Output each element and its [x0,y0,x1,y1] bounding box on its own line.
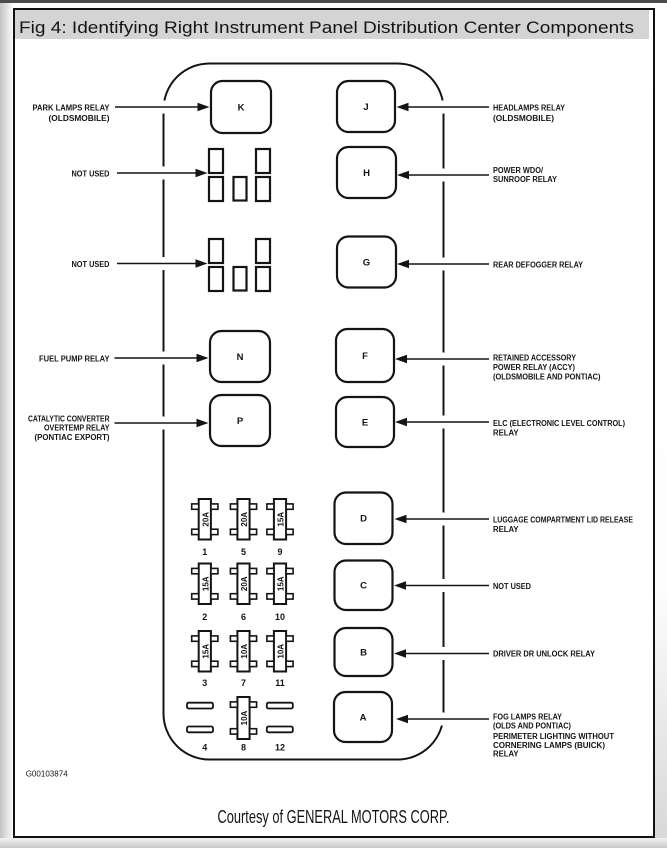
svg-text:10A: 10A [240,644,249,659]
svg-text:11: 11 [275,678,285,688]
svg-text:12: 12 [275,743,285,753]
svg-text:POWER WDO/: POWER WDO/ [493,166,544,175]
svg-text:CATALYTIC CONVERTER: CATALYTIC CONVERTER [28,414,110,423]
svg-text:20A: 20A [240,576,249,591]
svg-text:E: E [362,417,368,428]
svg-text:N: N [237,352,244,363]
svg-text:6: 6 [241,612,246,622]
svg-text:RETAINED ACCESSORY: RETAINED ACCESSORY [493,353,577,362]
svg-text:NOT USED: NOT USED [493,582,531,591]
svg-text:Courtesy of GENERAL MOTORS COR: Courtesy of GENERAL MOTORS CORP. [218,807,450,827]
svg-text:20A: 20A [201,512,210,527]
svg-text:(OLDSMOBILE AND PONTIAC): (OLDSMOBILE AND PONTIAC) [493,372,601,381]
svg-text:H: H [363,168,370,179]
svg-text:P: P [237,416,244,427]
svg-text:(OLDS AND PONTIAC): (OLDS AND PONTIAC) [493,721,571,730]
svg-text:REAR DEFOGGER RELAY: REAR DEFOGGER RELAY [493,261,584,270]
svg-text:PARK LAMPS RELAY: PARK LAMPS RELAY [33,103,111,112]
svg-text:SUNROOF RELAY: SUNROOF RELAY [493,175,558,184]
svg-text:10A: 10A [240,710,249,725]
svg-text:10: 10 [275,612,285,622]
svg-text:NOT USED: NOT USED [72,260,110,269]
svg-text:(OLDSMOBILE): (OLDSMOBILE) [493,114,554,123]
svg-text:C: C [360,581,367,592]
svg-text:15A: 15A [277,512,286,527]
svg-text:NOT USED: NOT USED [72,169,110,178]
svg-text:4: 4 [202,743,207,753]
svg-text:RELAY: RELAY [493,750,519,759]
svg-text:HEADLAMPS RELAY: HEADLAMPS RELAY [493,103,566,112]
svg-text:POWER RELAY (ACCY): POWER RELAY (ACCY) [493,363,575,372]
svg-text:D: D [360,514,367,525]
svg-text:ELC (ELECTRONIC LEVEL CONTROL): ELC (ELECTRONIC LEVEL CONTROL) [493,419,625,428]
svg-text:DRIVER DR UNLOCK RELAY: DRIVER DR UNLOCK RELAY [493,649,596,658]
svg-text:J: J [363,102,368,113]
svg-text:(PONTIAC EXPORT): (PONTIAC EXPORT) [35,433,110,442]
svg-text:PERIMETER LIGHTING WITHOUT: PERIMETER LIGHTING WITHOUT [493,732,614,741]
svg-text:8: 8 [241,743,246,753]
svg-text:FOG LAMPS RELAY: FOG LAMPS RELAY [493,712,563,721]
svg-text:15A: 15A [201,644,210,659]
svg-text:5: 5 [241,547,246,557]
svg-text:RELAY: RELAY [493,428,519,437]
svg-text:20A: 20A [240,512,249,527]
svg-text:7: 7 [241,678,246,688]
svg-text:G: G [363,257,370,268]
svg-text:A: A [360,712,367,723]
svg-text:15A: 15A [201,576,210,591]
svg-text:(OLDSMOBILE): (OLDSMOBILE) [49,114,110,123]
svg-text:OVERTEMP RELAY: OVERTEMP RELAY [44,424,110,433]
svg-text:RELAY: RELAY [493,525,519,534]
svg-text:K: K [238,102,245,113]
svg-text:F: F [362,351,368,362]
svg-text:1: 1 [202,547,207,557]
svg-text:Fig 4: Identifying Right Instr: Fig 4: Identifying Right Instrument Pane… [19,18,634,37]
svg-text:15A: 15A [277,576,286,591]
svg-text:FUEL PUMP RELAY: FUEL PUMP RELAY [39,354,110,363]
svg-text:2: 2 [202,612,207,622]
svg-text:9: 9 [277,547,282,557]
svg-text:G00103874: G00103874 [26,769,68,779]
svg-text:3: 3 [202,678,207,688]
svg-text:B: B [360,647,367,658]
svg-text:10A: 10A [277,644,286,659]
svg-text:LUGGAGE COMPARTMENT LID RELEAS: LUGGAGE COMPARTMENT LID RELEASE [493,515,634,524]
